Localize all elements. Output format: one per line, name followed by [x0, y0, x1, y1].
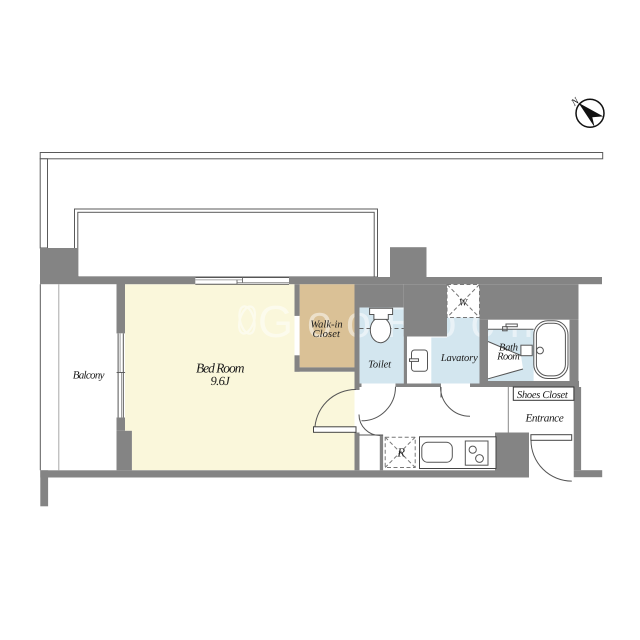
- svg-text:R: R: [396, 446, 405, 460]
- svg-text:Balcony: Balcony: [73, 369, 105, 381]
- svg-text:Room: Room: [496, 351, 520, 362]
- svg-text:Toilet: Toilet: [368, 360, 392, 371]
- svg-text:Entrance: Entrance: [524, 412, 563, 424]
- svg-text:Lavatory: Lavatory: [440, 353, 478, 364]
- svg-text:9.6J: 9.6J: [211, 374, 232, 388]
- svg-text:Shoes Closet: Shoes Closet: [517, 390, 569, 401]
- svg-text:Closet: Closet: [313, 329, 341, 340]
